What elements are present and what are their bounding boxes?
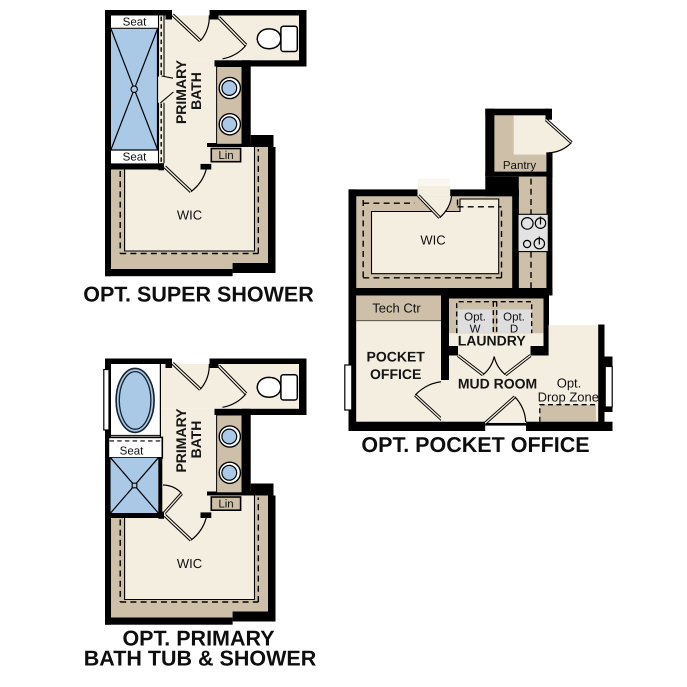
svg-text:POCKET: POCKET	[367, 349, 426, 365]
svg-text:Opt.: Opt.	[464, 312, 486, 324]
svg-text:WIC: WIC	[177, 556, 202, 571]
svg-text:PRIMARY: PRIMARY	[173, 59, 189, 124]
svg-text:Seat: Seat	[120, 445, 144, 457]
svg-text:BATH: BATH	[188, 421, 204, 459]
svg-text:OPT. SUPER SHOWER: OPT. SUPER SHOWER	[83, 283, 314, 307]
svg-text:Seat: Seat	[123, 17, 147, 29]
svg-text:Drop Zone: Drop Zone	[538, 389, 599, 404]
svg-text:OFFICE: OFFICE	[370, 366, 421, 382]
svg-text:MUD ROOM: MUD ROOM	[458, 376, 537, 392]
svg-text:Tech Ctr: Tech Ctr	[372, 300, 421, 315]
svg-text:OPT. POCKET OFFICE: OPT. POCKET OFFICE	[361, 433, 589, 457]
svg-text:LAUNDRY: LAUNDRY	[458, 333, 527, 349]
svg-text:Seat: Seat	[123, 151, 147, 163]
svg-text:Lin: Lin	[218, 150, 233, 162]
svg-text:Pantry: Pantry	[503, 160, 536, 172]
svg-text:Opt.: Opt.	[503, 312, 525, 324]
svg-text:Lin: Lin	[218, 499, 233, 511]
svg-text:PRIMARY: PRIMARY	[173, 408, 189, 473]
svg-text:WIC: WIC	[420, 233, 445, 248]
svg-text:WIC: WIC	[177, 208, 202, 223]
svg-text:Opt.: Opt.	[557, 376, 582, 391]
svg-text:BATH TUB & SHOWER: BATH TUB & SHOWER	[84, 646, 317, 670]
svg-text:BATH: BATH	[188, 72, 204, 110]
